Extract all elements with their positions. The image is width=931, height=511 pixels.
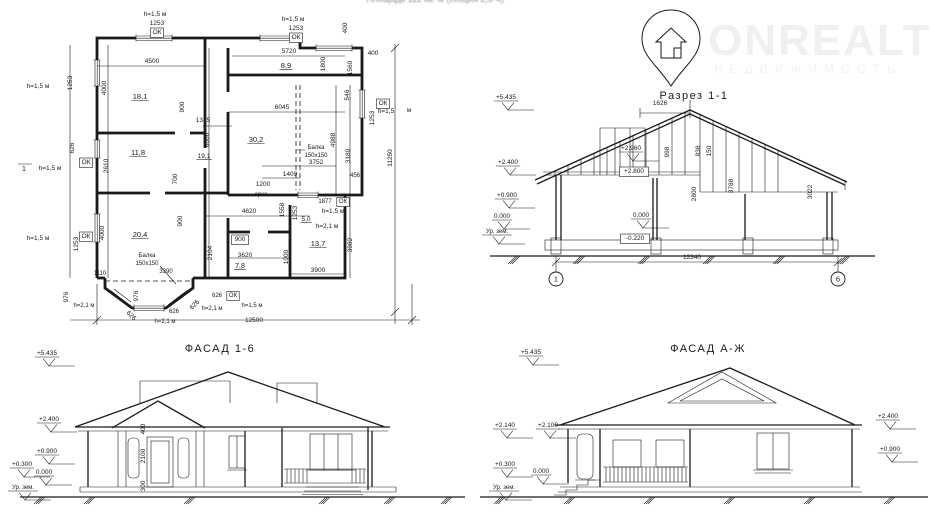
cropped-caption: Площадь 111 кв. м (секция 2,3-4): [295, 0, 575, 4]
elevation-mark-icon: [619, 152, 659, 161]
dimension-label: 400: [140, 423, 147, 434]
facade-a-zh-labels: ФАСАД А-Ж+5.435+2.140+2.100+0.3000.000Ур…: [489, 343, 918, 500]
dimension-label: h=2,1 м: [202, 306, 223, 312]
elevation-mark-icon: [519, 356, 559, 365]
elevation-mark-label: +0.900: [37, 448, 57, 455]
dimension-label: 3189: [345, 148, 352, 163]
dimension-label: 998: [664, 146, 671, 157]
dimension-label: 400: [368, 50, 379, 57]
dimension-label: 546: [344, 89, 351, 100]
dimension-label: 976: [133, 290, 140, 301]
dimension-label: 4988: [330, 132, 337, 147]
dimension-label: 1253: [73, 236, 80, 251]
elevation-mark-icon: [493, 468, 533, 477]
elevation-mark-label: +5.435: [37, 350, 57, 357]
dimension-label: h=1,5 м: [322, 208, 345, 215]
drawing-title: Разрез 1-1: [659, 90, 728, 102]
elevation-mark-icon: [878, 453, 918, 462]
dimension-label: h=1,5: [378, 108, 395, 115]
dimension-label: ОК: [339, 199, 348, 205]
dimension-label: h=1,5 м: [27, 235, 50, 242]
dimension-label: 1626: [653, 100, 668, 107]
dimension-label: 5720: [282, 48, 297, 55]
elevation-mark-icon: [496, 166, 536, 175]
dimension-label: ОК: [229, 293, 238, 299]
dimension-label: h=1,5 м: [27, 83, 50, 90]
blueprint-page: Площадь 111 кв. м (секция 2,3-4) ONREALT…: [0, 0, 931, 511]
elevation-mark-label: +2.960: [621, 145, 641, 152]
elevation-mark-label: +2.100: [538, 422, 558, 429]
dimension-label: 626: [189, 298, 202, 311]
dimension-label: h=2,1 м: [155, 319, 176, 325]
dimension-label: 900: [179, 101, 186, 112]
elevation-mark-label: +5.435: [521, 349, 541, 356]
watermark-brand: ONREALT: [708, 16, 931, 66]
dimension-label: арка: [255, 192, 268, 198]
dimension-label: 12500: [245, 317, 263, 324]
room-area-label: 20,4: [133, 230, 148, 239]
dimension-label: 3752: [309, 159, 324, 166]
elevation-mark-icon: [34, 476, 72, 485]
room-area-label: 7,8: [235, 263, 245, 270]
elevation-mark-icon: [492, 220, 530, 229]
dimension-label: h=2,1 м: [74, 303, 95, 309]
dimension-label: 3788: [728, 178, 735, 193]
dimension-label: 1558: [279, 202, 286, 217]
elevation-mark-label: +5.435: [496, 94, 516, 101]
elevation-mark-label: +2.400: [498, 159, 518, 166]
elevation-mark-icon: [35, 357, 75, 366]
drawing-title: ФАСАД 1-6: [185, 343, 256, 355]
dimension-label: 3620: [238, 252, 253, 259]
room-area-label: 8,9: [281, 61, 291, 70]
dimension-label: 3022: [807, 184, 814, 199]
dimension-label: 1409: [283, 171, 298, 178]
elevation-mark-icon: [482, 235, 525, 244]
dimension-label: 1253: [369, 110, 376, 125]
elevation-mark-label: 0.000: [533, 468, 550, 475]
dimension-label: 8666: [204, 132, 211, 147]
elevation-mark-label: Ур. зем.: [12, 485, 34, 491]
elevation-mark-icon: [35, 455, 75, 464]
elevation-mark-label: 0.000: [633, 212, 650, 219]
dimension-label: 150: [706, 145, 713, 156]
dimension-label: 456: [350, 173, 361, 179]
dimension-label: ОК: [292, 34, 301, 41]
axis-marker-label: 1: [554, 275, 558, 284]
facade-a-zh: [480, 368, 928, 504]
elevation-mark-icon: [494, 101, 534, 110]
dimension-label: 1110: [94, 271, 107, 277]
location-pin-house-icon: [636, 6, 706, 90]
elevation-mark-label: Ур. зем.: [493, 485, 515, 491]
elevation-mark-label: Ур. зем.: [486, 229, 508, 235]
dimension-label: 900: [235, 236, 246, 243]
elevation-mark-label: 0.000: [494, 213, 511, 220]
dimension-label: +2.800: [624, 168, 644, 175]
facade-1-6: [20, 372, 465, 504]
elevation-mark-label: +0.900: [497, 192, 517, 199]
dimension-label: h=1,5 м: [242, 303, 263, 309]
dimension-label: 1: [22, 166, 26, 173]
facade-1-6-labels: ФАСАД 1-6+5.435+2.400+0.900+0.3000.000Ур…: [8, 343, 255, 500]
room-area-label: 13,7: [311, 239, 326, 248]
elevation-mark-icon: [495, 199, 535, 208]
dimension-label: 2800: [691, 186, 698, 201]
watermark: ONREALT НЕДВИЖИМОСТЬ: [636, 6, 931, 90]
dimension-label: 6045: [275, 104, 290, 111]
dimension-label: 400: [342, 22, 349, 33]
dimension-label: h=1,5 м: [39, 165, 62, 172]
room-area-label: 18,1: [133, 92, 148, 101]
dimension-label: 2104: [207, 245, 214, 260]
dimension-label: 3982: [347, 237, 354, 252]
elevation-mark-icon: [536, 429, 576, 438]
elevation-mark-icon: [876, 420, 916, 429]
elevation-mark-label: +2.400: [878, 413, 898, 420]
dimension-label: 12340: [683, 254, 701, 261]
dimension-label: 4000: [101, 80, 108, 95]
elevation-mark-label: +2.140: [495, 422, 515, 429]
dimension-label: 1877: [318, 199, 332, 205]
dimension-label: ОК: [82, 233, 91, 240]
elevation-mark-label: 0.000: [36, 469, 53, 476]
dimension-label: Балка: [308, 145, 326, 151]
elevation-mark-icon: [489, 491, 532, 500]
dimension-label: 4500: [145, 58, 160, 65]
dimension-label: h=1,5 м: [144, 11, 167, 18]
room-area-label: 30,2: [249, 135, 264, 144]
dimension-label: 1560: [347, 60, 354, 75]
dimension-label: 300: [140, 480, 147, 491]
dimension-label: 976: [63, 291, 70, 302]
dimension-label: ОК: [379, 100, 388, 107]
drawing-title: ФАСАД А-Ж: [670, 343, 746, 355]
dimension-label: 626: [125, 310, 138, 323]
dimension-label: ОК: [82, 159, 91, 166]
dimension-label: 3900: [311, 267, 326, 274]
dimension-label: Балка: [139, 253, 157, 259]
elevation-mark-label: +0.900: [880, 446, 900, 453]
dimension-label: 1253: [292, 205, 299, 220]
elevation-mark-icon: [37, 423, 77, 432]
dimension-label: 900: [177, 215, 184, 226]
room-area-label: 19,1: [198, 153, 211, 160]
elevation-mark-icon: [493, 429, 533, 438]
dimension-label: 626: [212, 293, 223, 299]
dimension-label: h=2,1 м: [316, 223, 339, 230]
elevation-mark-icon: [531, 475, 569, 484]
elevation-mark-icon: [8, 491, 51, 500]
dimension-label: 626: [69, 142, 76, 153]
dimension-label: -0.220: [626, 235, 645, 242]
dimension-label: 1253: [150, 20, 165, 27]
dimension-label: 150х150: [135, 261, 159, 267]
dimension-label: 1800: [320, 56, 327, 71]
elevation-mark-label: +0.300: [495, 461, 515, 468]
dimension-label: 4620: [242, 208, 257, 215]
dimension-label: м: [407, 107, 412, 114]
dimension-label: 2100: [140, 448, 147, 463]
dimension-label: 3390: [159, 269, 173, 275]
dimension-label: 11250: [387, 149, 394, 167]
dimension-label: 4000: [99, 225, 106, 240]
dimension-label: 700: [172, 173, 179, 184]
dimension-label: ОК: [153, 29, 162, 36]
dimension-label: 1315: [196, 117, 211, 124]
dimension-label: 2610: [103, 158, 110, 173]
dimension-label: 1200: [256, 181, 271, 188]
elevation-mark-label: +2.400: [39, 416, 59, 423]
elevation-mark-icon: [631, 219, 669, 228]
dimension-label: 1253: [67, 75, 74, 90]
dimension-label: 1000: [283, 249, 290, 264]
room-area-label: 5,0: [301, 216, 310, 223]
dimension-label: 626: [169, 309, 180, 315]
dimension-label: h=1,5 м: [282, 16, 305, 23]
elevation-mark-label: +0.300: [12, 461, 32, 468]
room-area-label: 11,8: [131, 148, 145, 157]
dimension-label: 838: [695, 145, 702, 156]
floor-plan: [18, 35, 420, 326]
section-1-1: [490, 100, 875, 272]
dimension-label: 1253: [289, 25, 304, 32]
watermark-subtitle: НЕДВИЖИМОСТЬ: [714, 62, 902, 76]
axis-marker-label: 6: [836, 275, 840, 284]
